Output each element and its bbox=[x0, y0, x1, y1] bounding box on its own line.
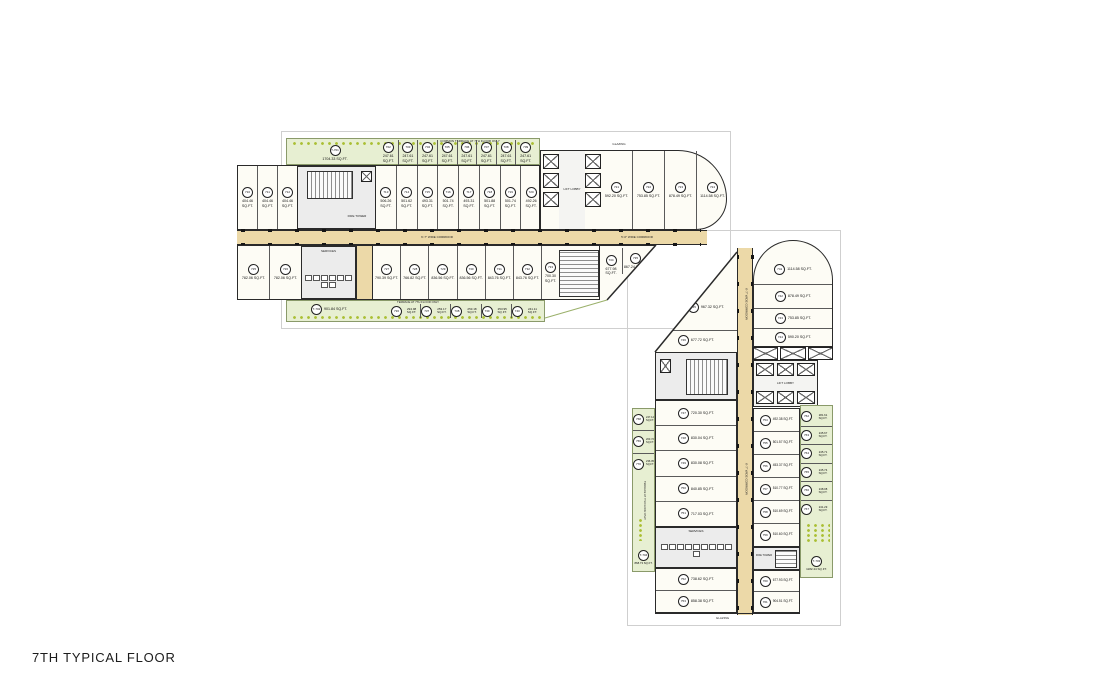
unit-area-label: 868.73 SQ.FT. bbox=[634, 562, 652, 565]
unit-number-badge: 706 bbox=[461, 142, 472, 153]
unit-number-badge: 751 bbox=[678, 508, 689, 519]
lift-bank-top bbox=[756, 363, 815, 376]
wing-a-bottom-terrace: T-702 901.84 SQ.FT. TERRACE AT 7TH FLOOR… bbox=[286, 300, 545, 322]
unit-area-label: 253.18 SQ.FT. bbox=[463, 308, 480, 315]
column-line bbox=[241, 229, 701, 232]
unit-cell: 732 843.76 SQ.FT. bbox=[513, 246, 541, 299]
unit-number-badge: 763 bbox=[801, 430, 812, 441]
unit-cell: 723 878.49 SQ.FT. bbox=[664, 151, 696, 229]
unit-number-badge: 729 bbox=[437, 264, 448, 275]
unit-number-badge: 752 bbox=[678, 574, 689, 585]
unit-area-label: 294.98 SQ.FT. bbox=[403, 308, 420, 315]
unit-number-badge: 717 bbox=[463, 187, 474, 198]
wing-b-right-terrace: 762 281.61 SQ.FT. 763 245.67 SQ.FT. 764 … bbox=[800, 405, 833, 578]
unit-cell: 745 967.32 SQ.FT. bbox=[677, 302, 735, 313]
unit-area-label: 790.39 SQ.FT. bbox=[375, 276, 398, 280]
balcony-row-bottom: 736 294.98 SQ.FT. 737 253.17 SQ.FT. 738 … bbox=[391, 304, 541, 318]
unit-cell: 737 253.17 SQ.FT. bbox=[420, 304, 450, 318]
unit-cell: 738 253.18 SQ.FT. bbox=[450, 304, 480, 318]
unit-number-badge: 758 bbox=[760, 507, 771, 518]
unit-area-label: 245.67 SQ.FT. bbox=[814, 432, 832, 438]
stair-core-a: FIRE TOWER bbox=[297, 166, 376, 229]
unit-cell: 763 245.67 SQ.FT. bbox=[801, 426, 832, 445]
stair-core-b1 bbox=[655, 352, 737, 400]
unit-cell: 757 510.77 SQ.FT. bbox=[754, 477, 799, 500]
unit-cell: 767 241.29 SQ.FT. bbox=[801, 500, 832, 519]
unit-number-badge: 723 bbox=[675, 182, 686, 193]
unit-number-badge: 731 bbox=[494, 264, 505, 275]
unit-area-label: 492.26 SQ.FT. bbox=[522, 199, 541, 207]
unit-number-badge: T-704 bbox=[638, 550, 649, 561]
unit-number-badge: T-702 bbox=[311, 304, 322, 315]
unit-cell: 711 404.46 SQ.FT. bbox=[257, 166, 277, 229]
unit-area-label: 247.61 SQ.FT. bbox=[478, 154, 496, 162]
unit-number-badge: 730 bbox=[466, 264, 477, 275]
unit-cell: 720 492.26 SQ.FT. bbox=[520, 166, 541, 229]
wing-a-upper-band: 710 404.46 SQ.FT. 711 404.46 SQ.FT. 712 … bbox=[237, 165, 540, 230]
unit-number-badge: 718 bbox=[484, 187, 495, 198]
unit-cell: 753 858.38 SQ.FT. bbox=[656, 590, 736, 612]
unit-cell: 766 248.08 SQ.FT. bbox=[801, 481, 832, 500]
unit-area-label: 843.76 SQ.FT. bbox=[488, 276, 511, 280]
unit-cell: 755 501.57 SQ.FT. bbox=[754, 431, 799, 454]
unit-cell: 708 247.61 SQ.FT. bbox=[496, 140, 516, 165]
unit-row-upper-mid: 713 506.26 SQ.FT. 714 501.62 SQ.FT. 715 … bbox=[376, 166, 541, 229]
duct-shaft bbox=[753, 347, 778, 360]
unit-cell: 719 501.74 SQ.FT. bbox=[500, 166, 521, 229]
unit-number-badge: 770 bbox=[633, 459, 644, 470]
unit-number-badge: 744 bbox=[775, 332, 786, 343]
unit-area-label: 677.98 SQ.FT. bbox=[601, 267, 622, 275]
unit-cell: 702 247.61 SQ.FT. bbox=[379, 140, 398, 165]
unit-number-badge: 765 bbox=[801, 467, 812, 478]
unit-number-badge: 702 bbox=[383, 142, 394, 153]
terrace-unit: T-702 901.84 SQ.FT. bbox=[311, 304, 347, 315]
lift-car bbox=[585, 192, 601, 207]
unit-area-label: 493.31 SQ.FT. bbox=[460, 199, 479, 207]
unit-number-badge: 749 bbox=[678, 458, 689, 469]
unit-area-label: 247.61 SQ.FT. bbox=[438, 154, 456, 162]
unit-number-badge: 708 bbox=[501, 142, 512, 153]
unit-cell: 724 1114.58 SQ.FT. bbox=[696, 151, 728, 229]
unit-number-badge: 719 bbox=[505, 187, 516, 198]
lift-bank-right bbox=[585, 154, 601, 228]
unit-cell: 762 281.61 SQ.FT. bbox=[801, 408, 832, 426]
unit-area-label: 836.56 SQ.FT. bbox=[460, 276, 483, 280]
unit-cell: 740 241.11 SQ.FT. bbox=[511, 304, 541, 318]
unit-area-label: 453.37 SQ.FT. bbox=[773, 464, 794, 468]
duct-shaft bbox=[808, 347, 833, 360]
plants-patch bbox=[803, 522, 830, 542]
unit-area-label: 247.61 SQ.FT. bbox=[419, 154, 437, 162]
unit-area-label: 241.29 SQ.FT. bbox=[814, 506, 832, 512]
unit-number-badge: 768 bbox=[633, 414, 644, 425]
unit-number-badge: 713 bbox=[380, 187, 391, 198]
unit-number-badge: 753 bbox=[678, 596, 689, 607]
wing-a-top-terrace: T-701 1704.33 SQ.FT. COMMON TERRACE AT 7… bbox=[286, 138, 540, 165]
corridor-label: 6'-7" WIDE CORRIDOR bbox=[744, 463, 747, 495]
unit-cell: 756 453.37 SQ.FT. bbox=[754, 454, 799, 477]
unit-number-badge: 742 bbox=[775, 291, 786, 302]
toilet-fixtures bbox=[305, 268, 352, 294]
unit-cell: 742 878.49 SQ.FT. bbox=[754, 284, 832, 308]
unit-area-label: 510.60 SQ.FT. bbox=[773, 533, 794, 537]
unit-row-lower-mid: 727 790.39 SQ.FT. 728 766.82 SQ.FT. 729 … bbox=[373, 246, 541, 299]
unit-area-label: 404.46 SQ.FT. bbox=[238, 199, 256, 207]
unit-area-label: 1182.44 SQ.FT. bbox=[806, 568, 827, 571]
unit-number-badge: 707 bbox=[481, 142, 492, 153]
unit-number-badge: T-703 bbox=[811, 556, 822, 567]
unit-number-badge: 722 bbox=[643, 182, 654, 193]
lift-car bbox=[797, 363, 815, 376]
staircase bbox=[775, 550, 797, 568]
terrace-unit: T-703 1182.44 SQ.FT. bbox=[801, 556, 832, 571]
corridor-label: 6'-7" WIDE CORRIDOR bbox=[397, 236, 477, 239]
unit-area-label: 247.61 SQ.FT. bbox=[399, 154, 417, 162]
unit-number-badge: 721 bbox=[611, 182, 622, 193]
wing-b-left-terrace: 768 247.14 SQ.FT. 769 203.72 SQ.FT. 770 … bbox=[632, 408, 655, 572]
wing-a-lower-band: 725 782.06 SQ.FT. 726 782.06 SQ.FT. SERV… bbox=[237, 245, 600, 300]
unit-cell: 713 506.26 SQ.FT. bbox=[376, 166, 396, 229]
unit-number-badge: 732 bbox=[522, 264, 533, 275]
unit-cell: 764 245.71 SQ.FT. bbox=[801, 444, 832, 463]
unit-cell: 768 247.14 SQ.FT. bbox=[633, 409, 654, 430]
unit-area-label: 720.30 SQ.FT. bbox=[691, 411, 714, 415]
unit-area-label: 1114.58 SQ.FT. bbox=[787, 267, 812, 271]
wing-a-right-band: LIFT LOBBY 721 592.20 SQ.FT. 722 753.85 … bbox=[540, 150, 727, 230]
unit-area-label: 281.61 SQ.FT. bbox=[814, 414, 832, 420]
glazing-label-b: GLAZING bbox=[700, 617, 745, 620]
unit-cell: 722 753.85 SQ.FT. bbox=[632, 151, 664, 229]
lift-lobby-label: LIFT LOBBY bbox=[564, 188, 581, 191]
wing-b-upper-left: 745 967.32 SQ.FT. 746 677.72 SQ.FT. bbox=[655, 252, 737, 352]
wing-b-dome: 741 1114.58 SQ.FT. 742 878.49 SQ.FT. 743… bbox=[753, 240, 833, 347]
unit-number-badge: 748 bbox=[678, 433, 689, 444]
unit-cell: 727 790.39 SQ.FT. bbox=[373, 246, 400, 299]
lift-car bbox=[756, 391, 774, 404]
unit-area-label: 830.04 SQ.FT. bbox=[691, 436, 714, 440]
staircase bbox=[686, 359, 728, 395]
unit-cell: 728 766.82 SQ.FT. bbox=[400, 246, 428, 299]
unit-cell: 729 836.56 SQ.FT. bbox=[428, 246, 456, 299]
unit-number-badge: 715 bbox=[422, 187, 433, 198]
unit-number-badge: 745 bbox=[688, 302, 699, 313]
unit-cell: 739 253.95 SQ.FT. bbox=[481, 304, 511, 318]
unit-cell: 714 501.62 SQ.FT. bbox=[396, 166, 417, 229]
unit-area-label: 592.20 SQ.FT. bbox=[605, 194, 628, 198]
unit-number-badge: 726 bbox=[280, 264, 291, 275]
plants-patch bbox=[635, 517, 642, 541]
unit-number-badge: 737 bbox=[421, 306, 432, 317]
unit-cell: 751 717.03 SQ.FT. bbox=[656, 501, 736, 526]
unit-area-label: 836.56 SQ.FT. bbox=[431, 276, 454, 280]
unit-cell: 707 247.61 SQ.FT. bbox=[476, 140, 496, 165]
unit-cell: 769 203.72 SQ.FT. bbox=[633, 430, 654, 452]
unit-cell: 717 493.31 SQ.FT. bbox=[458, 166, 479, 229]
lift-car bbox=[585, 173, 601, 188]
corridor-label: 6'-7" WIDE CORRIDOR bbox=[744, 288, 747, 320]
unit-area-label: 241.11 SQ.FT. bbox=[524, 308, 541, 315]
unit-cell: 718 501.88 SQ.FT. bbox=[479, 166, 500, 229]
unit-number-badge: 766 bbox=[801, 485, 812, 496]
unit-number-badge: 767 bbox=[801, 504, 812, 515]
unit-cell: 759 510.60 SQ.FT. bbox=[754, 523, 799, 546]
partition-line bbox=[655, 330, 737, 331]
unit-cell: 749 830.08 SQ.FT. bbox=[656, 450, 736, 475]
lift-car bbox=[543, 192, 559, 207]
unit-area-label: 967.32 SQ.FT. bbox=[701, 305, 724, 309]
unit-cell: 731 843.76 SQ.FT. bbox=[485, 246, 513, 299]
unit-cell: 715 493.31 SQ.FT. bbox=[417, 166, 438, 229]
unit-area-label: 878.49 SQ.FT. bbox=[788, 294, 811, 298]
lift-lobby-a: LIFT LOBBY bbox=[559, 151, 585, 229]
unit-cell: 760 677.93 SQ.FT. bbox=[754, 571, 799, 591]
unit-area-label: 590.20 SQ.FT. bbox=[788, 335, 811, 339]
unit-cell: 704 247.61 SQ.FT. bbox=[417, 140, 437, 165]
unit-area-label: 245.71 SQ.FT. bbox=[814, 451, 832, 457]
unit-area-label: 506.26 SQ.FT. bbox=[377, 199, 396, 207]
unit-number-badge: 705 bbox=[442, 142, 453, 153]
unit-area-label: 858.38 SQ.FT. bbox=[691, 599, 714, 603]
unit-number-badge: 769 bbox=[633, 436, 644, 447]
unit-number-badge: 738 bbox=[451, 306, 462, 317]
unit-number-badge: 709 bbox=[520, 142, 531, 153]
unit-area-label: 782.06 SQ.FT. bbox=[274, 276, 297, 280]
stair-core-a2 bbox=[559, 250, 599, 297]
terrace-cells-right: 762 281.61 SQ.FT. 763 245.67 SQ.FT. 764 … bbox=[801, 408, 832, 518]
unit-number-badge: T-701 bbox=[330, 145, 341, 156]
unit-col-left-mid: 747 720.30 SQ.FT. 748 830.04 SQ.FT. 749 … bbox=[655, 400, 737, 527]
unit-col-right: 754 492.38 SQ.FT. 755 501.57 SQ.FT. 756 … bbox=[753, 408, 800, 547]
lift-bank-bottom bbox=[756, 391, 815, 404]
unit-area-label: 247.61 SQ.FT. bbox=[497, 154, 515, 162]
unit-number-badge: 759 bbox=[760, 530, 771, 541]
unit-number-badge: 754 bbox=[760, 415, 771, 426]
unit-area-label: 247.61 SQ.FT. bbox=[458, 154, 476, 162]
unit-col-left-lower: 752 738.62 SQ.FT. 753 858.38 SQ.FT. bbox=[655, 568, 737, 613]
unit-number-badge: 747 bbox=[678, 408, 689, 419]
unit-area-label: 677.93 SQ.FT. bbox=[773, 579, 794, 583]
unit-number-badge: 710 bbox=[242, 187, 253, 198]
unit-number-badge: 755 bbox=[760, 438, 771, 449]
corridor-branch-a bbox=[356, 246, 373, 299]
wing-b-bottom-wall bbox=[655, 613, 800, 614]
unit-number-badge: 728 bbox=[409, 264, 420, 275]
unit-number-badge: 750 bbox=[678, 483, 689, 494]
unit-cell: 750 840.85 SQ.FT. bbox=[656, 476, 736, 501]
unit-number-badge: 704 bbox=[422, 142, 433, 153]
unit-cell: 733 700.30 SQ.FT. bbox=[541, 246, 559, 299]
unit-cell: 721 592.20 SQ.FT. bbox=[601, 151, 632, 229]
unit-area-label: 717.03 SQ.FT. bbox=[691, 512, 714, 516]
unit-number-badge: 725 bbox=[248, 264, 259, 275]
lift-lobby-b: LIFT LOBBY bbox=[753, 360, 818, 407]
unit-cell: 744 590.20 SQ.FT. bbox=[754, 328, 832, 346]
unit-area-label: 253.95 SQ.FT. bbox=[494, 308, 511, 315]
unit-number-badge: 734 bbox=[606, 255, 617, 266]
unit-cell: 726 782.06 SQ.FT. bbox=[269, 246, 301, 299]
unit-area-label: 404.46 SQ.FT. bbox=[258, 199, 276, 207]
unit-area-label: 501.88 SQ.FT. bbox=[480, 199, 499, 207]
unit-area-label: 247.61 SQ.FT. bbox=[379, 154, 397, 162]
terrace-unit: T-701 1704.33 SQ.FT. bbox=[295, 145, 375, 161]
unit-number-badge: 761 bbox=[760, 597, 771, 608]
unit-cell: 706 247.61 SQ.FT. bbox=[457, 140, 477, 165]
unit-number-badge: 703 bbox=[402, 142, 413, 153]
unit-cell: 716 501.74 SQ.FT. bbox=[437, 166, 458, 229]
unit-cell: 736 294.98 SQ.FT. bbox=[391, 304, 420, 318]
unit-area-label: 236.05 SQ.FT. bbox=[646, 461, 654, 467]
unit-cell: 705 247.61 SQ.FT. bbox=[437, 140, 457, 165]
unit-number-badge: 724 bbox=[707, 182, 718, 193]
unit-cell: 712 404.46 SQ.FT. bbox=[277, 166, 297, 229]
staircase bbox=[307, 171, 353, 199]
unit-area-label: 753.85 SQ.FT. bbox=[788, 316, 811, 320]
unit-cell: 752 738.62 SQ.FT. bbox=[656, 569, 736, 590]
unit-area-label: 1704.33 SQ.FT. bbox=[322, 157, 347, 161]
unit-number-badge: 741 bbox=[774, 264, 785, 275]
floorplan-canvas: T-701 1704.33 SQ.FT. COMMON TERRACE AT 7… bbox=[0, 0, 1100, 683]
unit-area-label: 904.51 SQ.FT. bbox=[773, 600, 794, 604]
unit-row-lower-left: 725 782.06 SQ.FT. 726 782.06 SQ.FT. bbox=[238, 246, 301, 299]
unit-area-label: 843.76 SQ.FT. bbox=[516, 276, 539, 280]
unit-number-badge: 716 bbox=[443, 187, 454, 198]
corridor-b: 6'-7" WIDE CORRIDOR 6'-7" WIDE CORRIDOR bbox=[737, 248, 753, 615]
unit-area-label: 766.82 SQ.FT. bbox=[403, 276, 426, 280]
unit-cell: 754 492.38 SQ.FT. bbox=[754, 409, 799, 431]
unit-cell: 746 677.72 SQ.FT. bbox=[655, 335, 737, 346]
unit-area-label: 245.74 SQ.FT. bbox=[814, 469, 832, 475]
unit-cell: 758 510.69 SQ.FT. bbox=[754, 500, 799, 523]
lift-car bbox=[797, 391, 815, 404]
services-label: SERVICES bbox=[656, 530, 736, 533]
unit-number-badge: 756 bbox=[760, 461, 771, 472]
shaft-row bbox=[753, 347, 833, 360]
unit-number-badge: 733 bbox=[545, 262, 556, 273]
unit-area-label: 738.62 SQ.FT. bbox=[691, 577, 714, 581]
unit-area-label: 510.77 SQ.FT. bbox=[773, 487, 794, 491]
unit-area-label: 840.85 SQ.FT. bbox=[691, 487, 714, 491]
terrace-unit: T-704 868.73 SQ.FT. bbox=[633, 550, 654, 565]
unit-number-badge: 746 bbox=[678, 335, 689, 346]
unit-row-upper-left: 710 404.46 SQ.FT. 711 404.46 SQ.FT. 712 … bbox=[238, 166, 297, 229]
unit-area-label: 830.08 SQ.FT. bbox=[691, 461, 714, 465]
unit-cell: 710 404.46 SQ.FT. bbox=[238, 166, 257, 229]
wing-b: 6'-7" WIDE CORRIDOR 6'-7" WIDE CORRIDOR … bbox=[630, 235, 841, 627]
unit-area-label: 878.49 SQ.FT. bbox=[669, 194, 692, 198]
unit-area-label: 492.38 SQ.FT. bbox=[773, 418, 794, 422]
glazing-label-a: GLAZING bbox=[599, 143, 639, 146]
lift-car bbox=[585, 154, 601, 169]
unit-cell: 725 782.06 SQ.FT. bbox=[238, 246, 269, 299]
unit-number-badge: 740 bbox=[512, 306, 523, 317]
unit-area-label: 677.72 SQ.FT. bbox=[691, 338, 714, 342]
unit-area-label: 253.17 SQ.FT. bbox=[433, 308, 450, 315]
unit-cell: 747 720.30 SQ.FT. bbox=[656, 401, 736, 425]
unit-area-label: 753.85 SQ.FT. bbox=[637, 194, 660, 198]
unit-area-label: 501.74 SQ.FT. bbox=[439, 199, 458, 207]
unit-cell: 734 677.98 SQ.FT. bbox=[600, 248, 622, 282]
unit-area-label: 404.46 SQ.FT. bbox=[278, 199, 296, 207]
balcony-row-top: 702 247.61 SQ.FT. 703 247.61 SQ.FT. 704 … bbox=[379, 140, 535, 165]
lift-car bbox=[543, 154, 559, 169]
terrace-note: TERRACE AT 7TH FLOOR ONLY bbox=[642, 481, 645, 520]
unit-area-label: 501.57 SQ.FT. bbox=[773, 441, 794, 445]
unit-number-badge: 743 bbox=[775, 313, 786, 324]
unit-number-badge: 739 bbox=[482, 306, 493, 317]
unit-area-label: 510.69 SQ.FT. bbox=[773, 510, 794, 514]
unit-area-label: 700.30 SQ.FT. bbox=[542, 274, 558, 282]
unit-area-label: 1114.58 SQ.FT. bbox=[700, 194, 725, 198]
toilet-fixtures bbox=[660, 536, 732, 564]
services-core-b: SERVICES bbox=[655, 527, 737, 568]
unit-number-badge: 711 bbox=[262, 187, 273, 198]
unit-area-label: 782.06 SQ.FT. bbox=[242, 276, 265, 280]
unit-area-label: 501.74 SQ.FT. bbox=[501, 199, 520, 207]
unit-area-label: 247.61 SQ.FT. bbox=[517, 154, 535, 162]
unit-cell: 709 247.61 SQ.FT. bbox=[515, 140, 535, 165]
fire-tower-label: FIRE TOWER bbox=[343, 215, 371, 218]
unit-number-badge: 757 bbox=[760, 484, 771, 495]
unit-cell: 761 904.51 SQ.FT. bbox=[754, 591, 799, 612]
lift-lobby-label: LIFT LOBBY bbox=[754, 382, 817, 385]
lift-car bbox=[777, 363, 795, 376]
unit-cell: 743 753.85 SQ.FT. bbox=[754, 308, 832, 328]
unit-area-label: 501.62 SQ.FT. bbox=[397, 199, 416, 207]
lift-car bbox=[756, 363, 774, 376]
unit-cell: 748 830.04 SQ.FT. bbox=[656, 425, 736, 450]
unit-number-badge: 764 bbox=[801, 448, 812, 459]
unit-cell: 741 1114.58 SQ.FT. bbox=[754, 241, 832, 284]
unit-area-label: 203.72 SQ.FT. bbox=[646, 439, 654, 445]
unit-cell: 765 245.74 SQ.FT. bbox=[801, 463, 832, 482]
unit-number-badge: 714 bbox=[401, 187, 412, 198]
unit-number-badge: 762 bbox=[801, 411, 812, 422]
unit-area-label: 493.31 SQ.FT. bbox=[418, 199, 437, 207]
unit-number-badge: 760 bbox=[760, 576, 771, 587]
unit-row-upper-right: 721 592.20 SQ.FT. 722 753.85 SQ.FT. 723 … bbox=[601, 151, 728, 229]
unit-cell: 770 236.05 SQ.FT. bbox=[633, 453, 654, 475]
unit-number-badge: 712 bbox=[282, 187, 293, 198]
unit-cell: 703 247.61 SQ.FT. bbox=[398, 140, 418, 165]
unit-cell: 730 836.56 SQ.FT. bbox=[457, 246, 485, 299]
services-label: SERVICES bbox=[302, 250, 355, 253]
drawing-title: 7TH TYPICAL FLOOR bbox=[32, 650, 176, 665]
services-core-a: SERVICES bbox=[301, 246, 356, 299]
fire-tower-core-b: FIRE TOWER bbox=[753, 547, 800, 570]
lift-car bbox=[543, 173, 559, 188]
unit-area-label: 247.14 SQ.FT. bbox=[646, 417, 654, 423]
terrace-cells-left: 768 247.14 SQ.FT. 769 203.72 SQ.FT. 770 … bbox=[633, 409, 654, 475]
lift-car bbox=[777, 391, 795, 404]
unit-number-badge: 727 bbox=[381, 264, 392, 275]
duct-shaft bbox=[660, 359, 671, 373]
unit-area-label: 901.84 SQ.FT. bbox=[324, 307, 347, 311]
duct-shaft bbox=[361, 171, 372, 182]
duct-shaft bbox=[780, 347, 805, 360]
lift-bank-left bbox=[543, 154, 559, 228]
fire-tower-label: FIRE TOWER bbox=[755, 555, 773, 558]
unit-number-badge: 720 bbox=[526, 187, 537, 198]
unit-col-right-lower: 760 677.93 SQ.FT. 761 904.51 SQ.FT. bbox=[753, 570, 800, 613]
unit-area-label: 248.08 SQ.FT. bbox=[814, 488, 832, 494]
unit-number-badge: 736 bbox=[391, 306, 402, 317]
